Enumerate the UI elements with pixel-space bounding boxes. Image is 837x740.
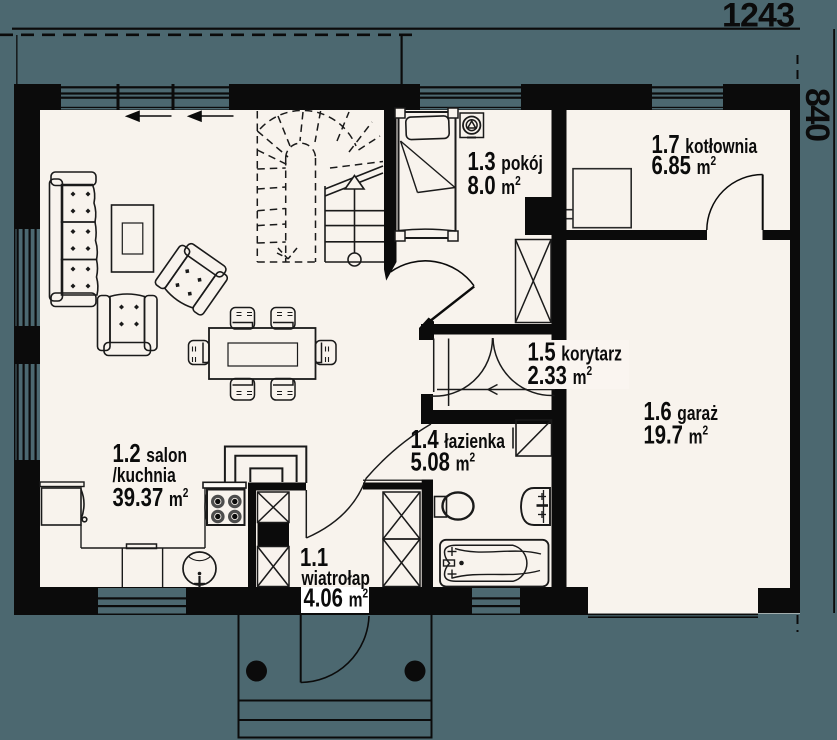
- svg-text:1243: 1243: [722, 0, 795, 35]
- svg-text:840: 840: [798, 88, 836, 142]
